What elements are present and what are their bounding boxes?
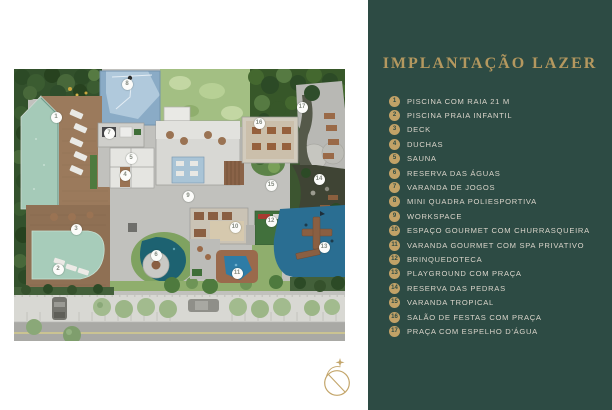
parked-car-1 xyxy=(52,297,67,320)
legend-label: VARANDA GOURMET COM SPA PRIVATIVO xyxy=(407,241,584,250)
legend-label: PRAÇA COM ESPELHO D'ÁGUA xyxy=(407,327,538,336)
parked-car-2 xyxy=(188,299,219,312)
legend-item-7: 7VARANDA DE JOGOS xyxy=(389,180,606,194)
site-plan: 1234567891011121314151617 xyxy=(14,69,345,341)
plan-marker-10: 10 xyxy=(230,222,241,233)
legend-item-8: 8MINI QUADRA POLIESPORTIVA xyxy=(389,195,606,209)
legend-number-badge: 7 xyxy=(389,182,400,193)
legend-label: VARANDA DE JOGOS xyxy=(407,183,495,192)
site-plan-art xyxy=(14,69,345,341)
legend-number-badge: 16 xyxy=(389,312,400,323)
street xyxy=(14,295,345,341)
plaza-espelho-dagua xyxy=(296,81,345,170)
legend-item-13: 13PLAYGROUND COM PRAÇA xyxy=(389,267,606,281)
legend-number-badge: 14 xyxy=(389,283,400,294)
legend-label: ESPAÇO GOURMET COM CHURRASQUEIRA xyxy=(407,226,590,235)
plan-marker-3: 3 xyxy=(71,224,82,235)
legend-label: MINI QUADRA POLIESPORTIVA xyxy=(407,197,537,206)
legend-label: BRINQUEDOTECA xyxy=(407,255,482,264)
legend-number-badge: 1 xyxy=(389,96,400,107)
plan-marker-4: 4 xyxy=(120,170,131,181)
plan-marker-14: 14 xyxy=(314,174,325,185)
brand-logo xyxy=(320,356,356,402)
plan-marker-17: 17 xyxy=(297,102,308,113)
legend-label: PISCINA PRAIA INFANTIL xyxy=(407,111,512,120)
playground xyxy=(274,205,345,283)
legend-item-9: 9WORKSPACE xyxy=(389,209,606,223)
plan-marker-15: 15 xyxy=(266,180,277,191)
legend-number-badge: 10 xyxy=(389,225,400,236)
legend-label: VARANDA TROPICAL xyxy=(407,298,494,307)
legend-number-badge: 11 xyxy=(389,240,400,251)
plan-marker-8: 8 xyxy=(122,79,133,90)
legend-label: WORKSPACE xyxy=(407,212,462,221)
legend-item-12: 12BRINQUEDOTECA xyxy=(389,252,606,266)
legend-item-10: 10ESPAÇO GOURMET COM CHURRASQUEIRA xyxy=(389,224,606,238)
reserva-das-aguas xyxy=(131,232,197,286)
legend-list: 1PISCINA COM RAIA 21 M2PISCINA PRAIA INF… xyxy=(389,94,606,339)
legend-item-15: 15VARANDA TROPICAL xyxy=(389,295,606,309)
logo-diagonal xyxy=(329,375,346,393)
legend-item-3: 3DECK xyxy=(389,123,606,137)
plan-marker-2: 2 xyxy=(53,264,64,275)
legend-number-badge: 17 xyxy=(389,326,400,337)
legend-number-badge: 6 xyxy=(389,168,400,179)
legend-number-badge: 8 xyxy=(389,196,400,207)
legend-number-badge: 4 xyxy=(389,139,400,150)
logo-sparkle-icon xyxy=(336,358,345,367)
legend-item-5: 5SAUNA xyxy=(389,152,606,166)
plan-marker-1: 1 xyxy=(51,112,62,123)
plan-marker-7: 7 xyxy=(104,128,115,139)
legend-label: PISCINA COM RAIA 21 M xyxy=(407,97,510,106)
legend-item-14: 14RESERVA DAS PEDRAS xyxy=(389,281,606,295)
legend-label: RESERVA DAS ÁGUAS xyxy=(407,169,501,178)
legend-item-17: 17PRAÇA COM ESPELHO D'ÁGUA xyxy=(389,324,606,338)
legend-item-16: 16SALÃO DE FESTAS COM PRAÇA xyxy=(389,310,606,324)
legend-item-4: 4DUCHAS xyxy=(389,137,606,151)
plan-marker-6: 6 xyxy=(151,250,162,261)
legend-panel: IMPLANTAÇÃO LAZER 1PISCINA COM RAIA 21 M… xyxy=(368,0,612,410)
legend-label: DECK xyxy=(407,125,431,134)
panel-title: IMPLANTAÇÃO LAZER xyxy=(368,55,612,73)
legend-number-badge: 13 xyxy=(389,268,400,279)
legend-item-11: 11VARANDA GOURMET COM SPA PRIVATIVO xyxy=(389,238,606,252)
legend-label: SALÃO DE FESTAS COM PRAÇA xyxy=(407,313,542,322)
legend-item-6: 6RESERVA DAS ÁGUAS xyxy=(389,166,606,180)
legend-number-badge: 3 xyxy=(389,124,400,135)
legend-label: SAUNA xyxy=(407,154,437,163)
legend-item-1: 1PISCINA COM RAIA 21 M xyxy=(389,94,606,108)
legend-number-badge: 2 xyxy=(389,110,400,121)
top-lawn xyxy=(160,69,250,127)
plan-marker-11: 11 xyxy=(232,268,243,279)
legend-label: RESERVA DAS PEDRAS xyxy=(407,284,506,293)
plan-marker-9: 9 xyxy=(183,191,194,202)
walkway-tile xyxy=(128,223,137,232)
legend-item-2: 2PISCINA PRAIA INFANTIL xyxy=(389,108,606,122)
plan-marker-13: 13 xyxy=(319,242,330,253)
legend-label: PLAYGROUND COM PRAÇA xyxy=(407,269,522,278)
legend-number-badge: 5 xyxy=(389,153,400,164)
legend-number-badge: 12 xyxy=(389,254,400,265)
plan-marker-16: 16 xyxy=(254,118,265,129)
legend-label: DUCHAS xyxy=(407,140,443,149)
legend-number-badge: 15 xyxy=(389,297,400,308)
kids-pool-area xyxy=(26,205,110,287)
plan-marker-5: 5 xyxy=(126,153,137,164)
plan-marker-12: 12 xyxy=(266,216,277,227)
legend-number-badge: 9 xyxy=(389,211,400,222)
